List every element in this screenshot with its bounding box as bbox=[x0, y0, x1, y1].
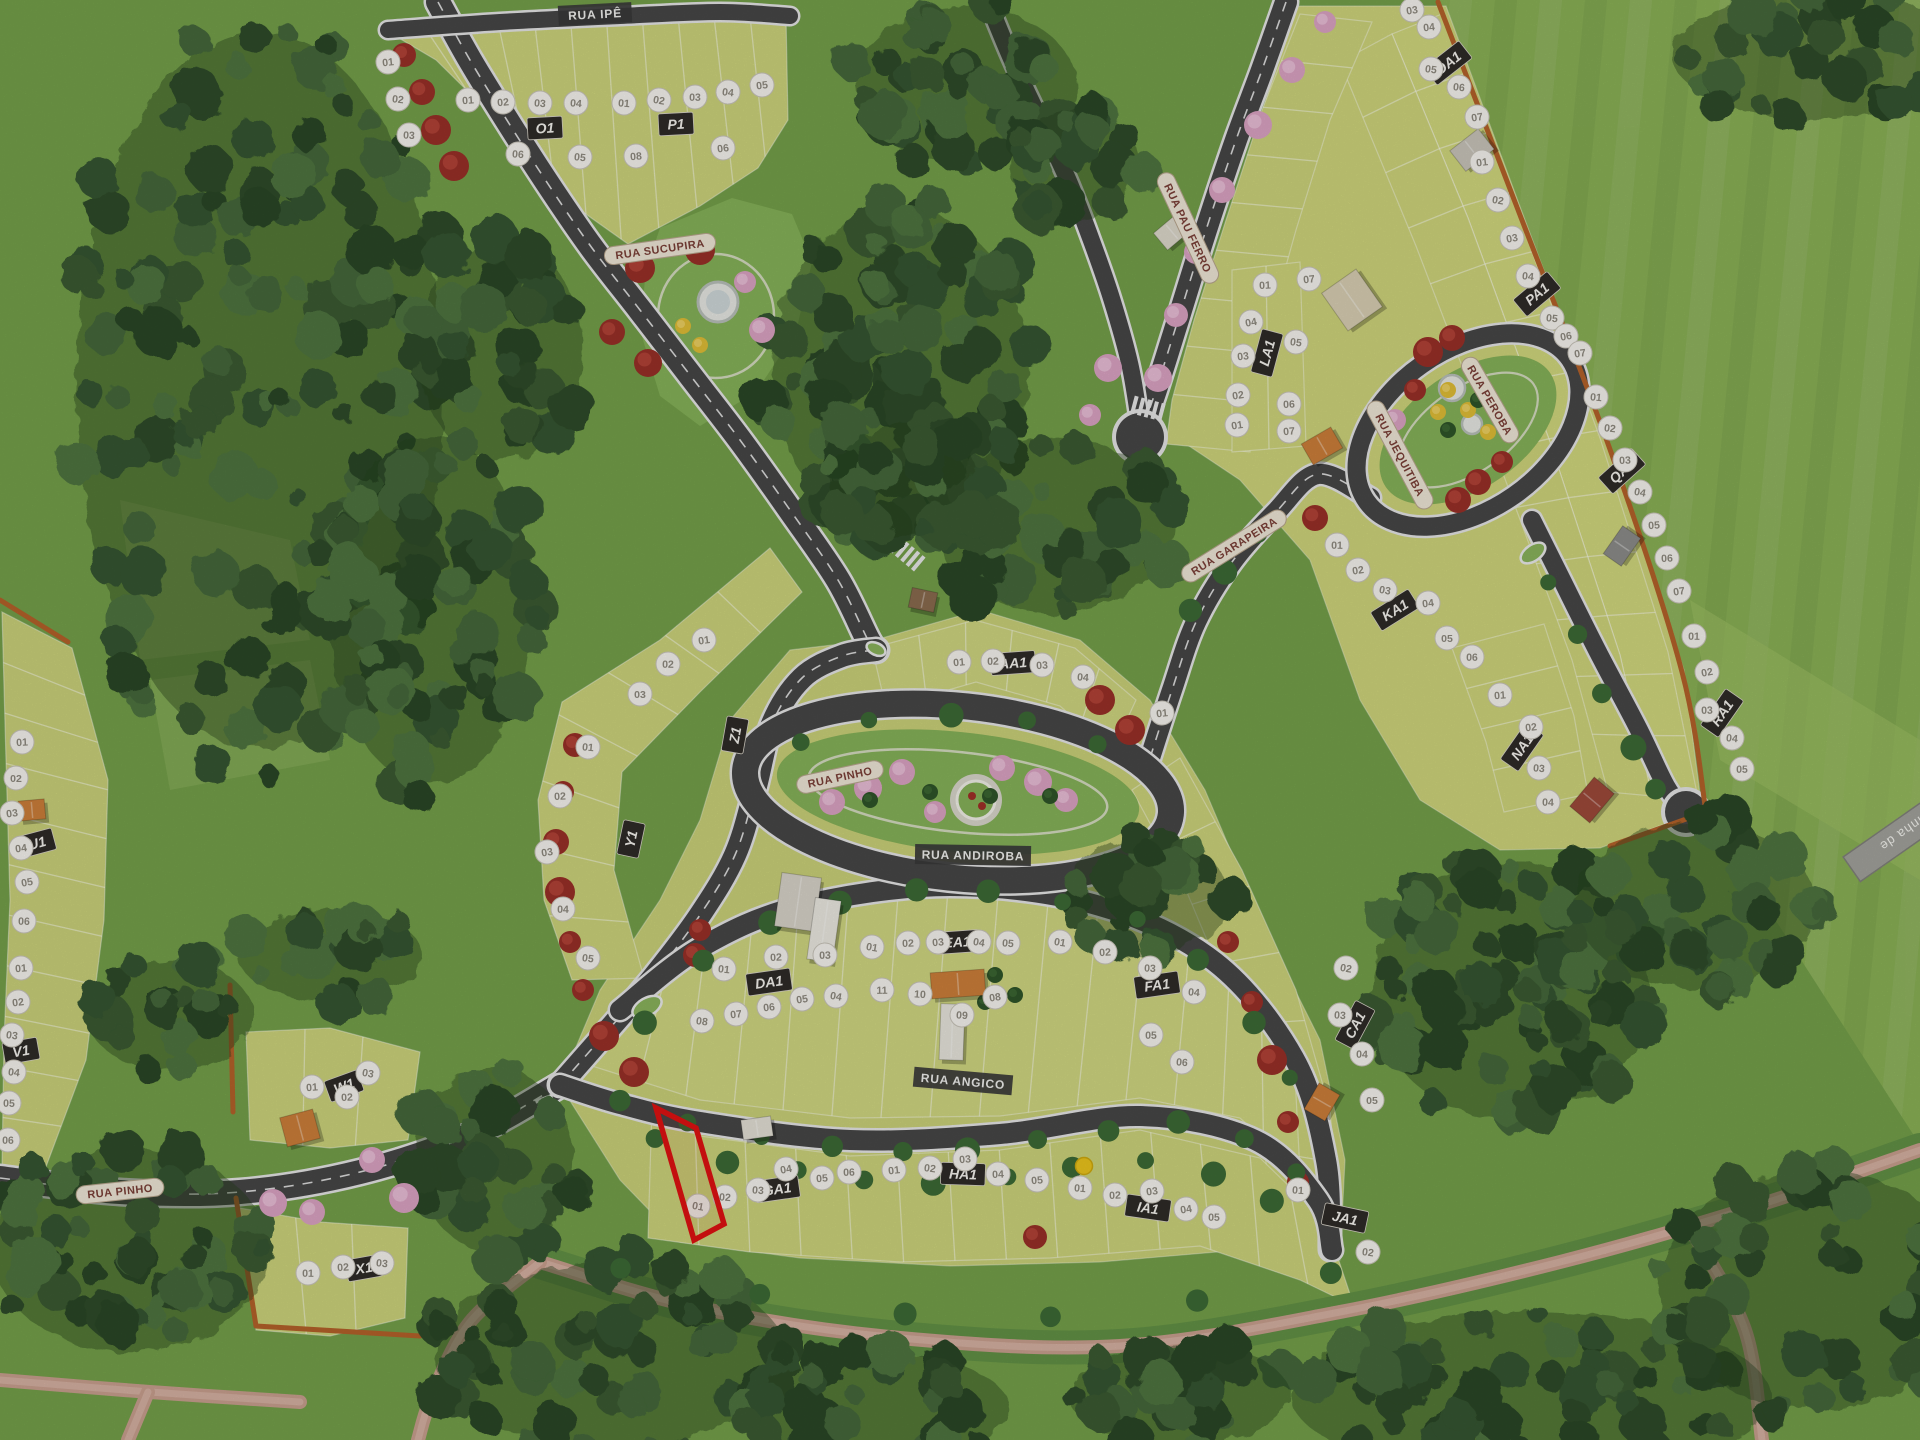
scale-model-photo: Aerial photograph of a physical scale mo… bbox=[0, 0, 1920, 1440]
site-plan-model: RUA SUCUPIRARUA PINHORUA PINHORUA PAU FE… bbox=[0, 0, 1920, 1440]
photo-grain bbox=[0, 0, 1920, 1440]
